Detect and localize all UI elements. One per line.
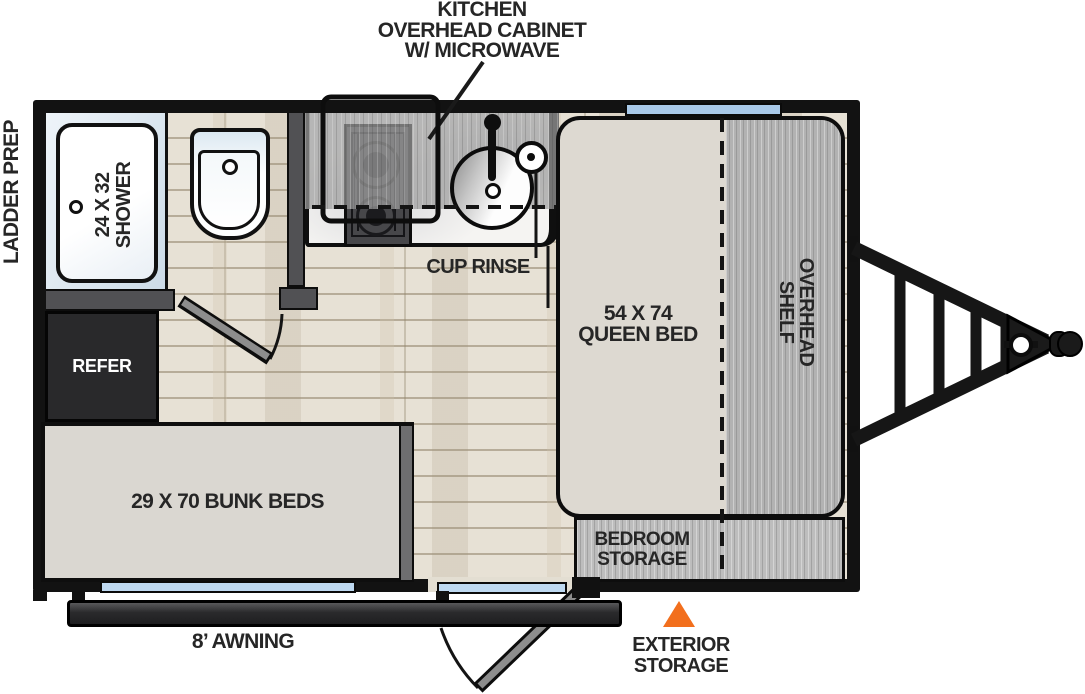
awning-bar	[67, 600, 622, 627]
callout-line-1: KITCHEN	[378, 0, 587, 21]
entry-door-hinge-block	[572, 577, 600, 598]
bedroom-storage-label-line-1: BEDROOM	[594, 530, 689, 550]
exterior-storage-marker-icon	[663, 601, 695, 627]
tongue-a-frame-hitch	[848, 236, 1082, 452]
bathroom-wall-footing	[279, 287, 318, 310]
overhead-shelf-label-line-2: SHELF	[776, 258, 796, 367]
sink-drain-icon	[485, 183, 501, 199]
bedroom-storage-label-line-2: STORAGE	[594, 550, 689, 570]
bunk-beds: 29 X 70 BUNK BEDS	[41, 422, 414, 582]
stove-burner-small-center	[366, 206, 386, 226]
exterior-storage-label: EXTERIOR STORAGE	[632, 635, 729, 676]
bedroom-window	[625, 103, 782, 116]
shower-drain-icon	[69, 200, 83, 214]
callout-line-2: OVERHEAD CABINET	[378, 21, 587, 42]
faucet-knob-icon	[484, 114, 501, 131]
wall-corner-foot	[33, 590, 47, 601]
bathroom-kitchen-wall	[287, 113, 305, 287]
awning-label: 8’ AWNING	[192, 630, 294, 654]
overhead-shelf-label: OVERHEAD SHELF	[776, 258, 816, 367]
ladder-prep-label: LADDER PREP	[0, 120, 24, 264]
callout-line-3: W/ MICROWAVE	[378, 41, 587, 62]
bunk-end-post	[399, 424, 414, 582]
refrigerator-label: REFER	[72, 356, 132, 377]
bunk-side-window	[100, 581, 356, 593]
refrigerator: REFER	[45, 311, 159, 422]
overhead-shelf-label-line-1: OVERHEAD	[796, 258, 816, 367]
bunk-beds-label: 29 X 70 BUNK BEDS	[131, 490, 324, 514]
queen-bed-label-line-1: 54 X 74	[578, 303, 697, 324]
toilet-flush-button	[222, 159, 238, 175]
exterior-storage-label-line-1: EXTERIOR	[632, 635, 729, 656]
cup-rinse-label: CUP RINSE	[426, 256, 529, 279]
tongue-jack-icon	[1011, 335, 1031, 355]
exterior-storage-label-line-2: STORAGE	[632, 656, 729, 677]
shower-label: 24 X 32 SHOWER	[93, 162, 135, 248]
floorplan-canvas: REFER 29 X 70 BUNK BEDS	[0, 0, 1085, 694]
queen-bed-label-line-2: QUEEN BED	[578, 324, 697, 345]
cup-rinse-fixture-center	[527, 153, 535, 161]
bedroom-storage-label: BEDROOM STORAGE	[594, 530, 689, 569]
faucet-icon	[488, 127, 496, 181]
shower-label-line-2: SHOWER	[114, 162, 135, 248]
queen-bed-label: 54 X 74 QUEEN BED	[578, 303, 697, 345]
kitchen-cabinet-callout: KITCHEN OVERHEAD CABINET W/ MICROWAVE	[378, 0, 587, 62]
entry-threshold-window	[437, 582, 567, 594]
bathroom-bottom-wall	[46, 289, 175, 311]
shower-label-line-1: 24 X 32	[93, 162, 114, 248]
